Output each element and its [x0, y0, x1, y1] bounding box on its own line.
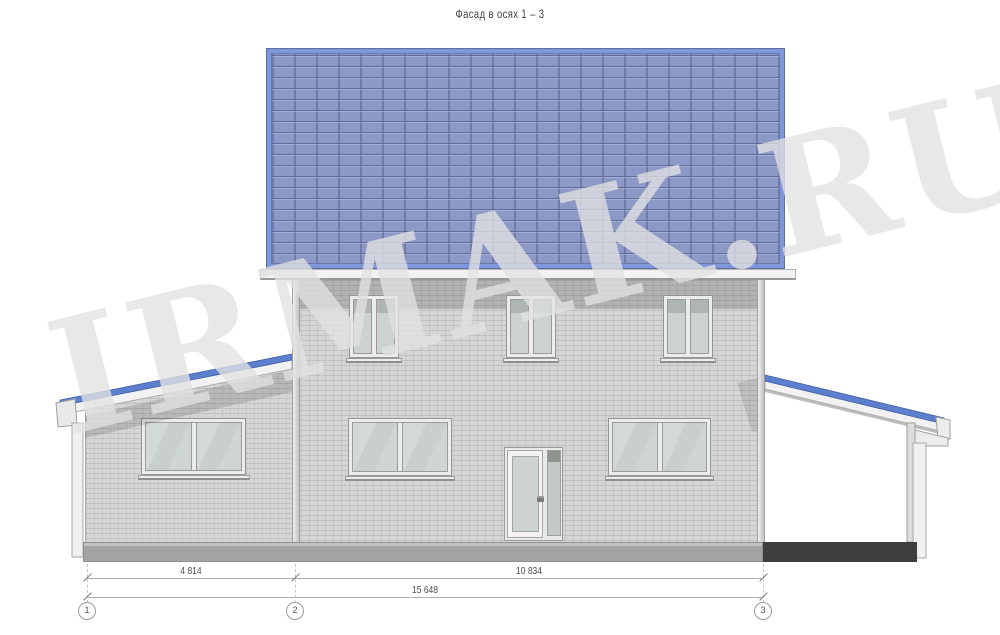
plinth-dark-section: [763, 542, 917, 562]
axis-marker-2: 2: [286, 602, 304, 620]
corner-trim-axis2: [292, 280, 300, 542]
dimension-value-total: 15 648: [383, 585, 468, 596]
dimension-value-1-2: 4 814: [149, 566, 234, 577]
corner-trim-axis3: [757, 280, 765, 542]
dimension-line-overall: [87, 597, 763, 598]
porch-roof-metal-edge: [765, 375, 944, 424]
dimension-value-2-3: 10 834: [487, 566, 572, 577]
axis-marker-3: 3: [754, 602, 772, 620]
facade-drawing: Фасад в осях 1 – 3: [0, 0, 1000, 635]
plinth: [83, 542, 763, 562]
annex-downspout: [72, 423, 83, 557]
porch-downspout: [913, 443, 926, 558]
axis-marker-1: 1: [78, 602, 96, 620]
dimension-line-intermediate: [87, 578, 763, 579]
sloped-elements-overlay: [0, 0, 1000, 635]
